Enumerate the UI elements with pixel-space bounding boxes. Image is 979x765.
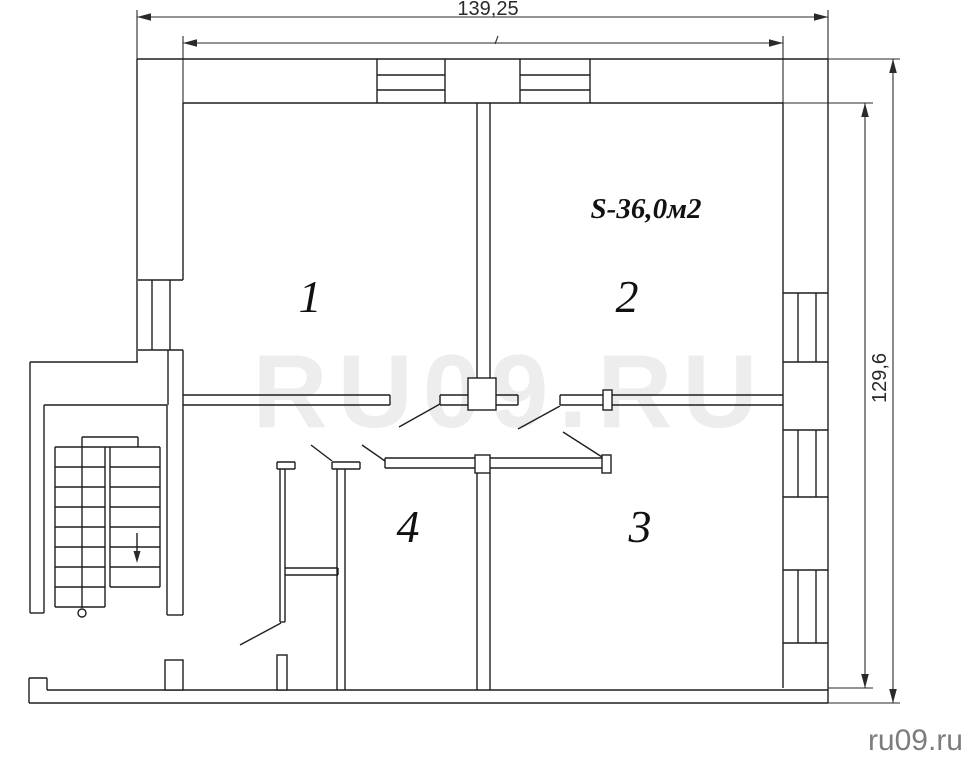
room-label-2: 2 — [616, 271, 639, 322]
room-label-4: 4 — [397, 501, 420, 552]
floor-plan-svg: RU09.RU 139,25 129,6 — [0, 0, 979, 765]
height-dimension-label: 129,6 — [869, 353, 891, 403]
room-label-3: 3 — [628, 501, 652, 552]
top-width-dimension: 139,25 — [137, 0, 828, 103]
vent-block — [468, 378, 496, 410]
width-dimension-label: 139,25 — [457, 0, 518, 20]
door-jamb — [165, 660, 183, 690]
door-jamb — [602, 455, 611, 473]
wall-post — [475, 455, 490, 473]
top-wall-windows — [377, 59, 590, 103]
site-logo: ru09.ru — [868, 724, 963, 757]
area-label: S-36,0м2 — [591, 193, 702, 225]
door-jamb — [603, 390, 612, 410]
watermark-text: RU09.RU — [253, 334, 768, 450]
right-height-dimension: 129,6 — [783, 59, 900, 703]
floor-plan-page: RU09.RU 139,25 129,6 — [0, 0, 979, 765]
right-wall-windows — [783, 293, 828, 643]
stair-path-start-circle — [78, 609, 86, 617]
door-jamb — [277, 655, 287, 690]
room-label-1: 1 — [299, 271, 322, 322]
staircase — [55, 437, 160, 617]
left-wall-window — [138, 280, 183, 350]
